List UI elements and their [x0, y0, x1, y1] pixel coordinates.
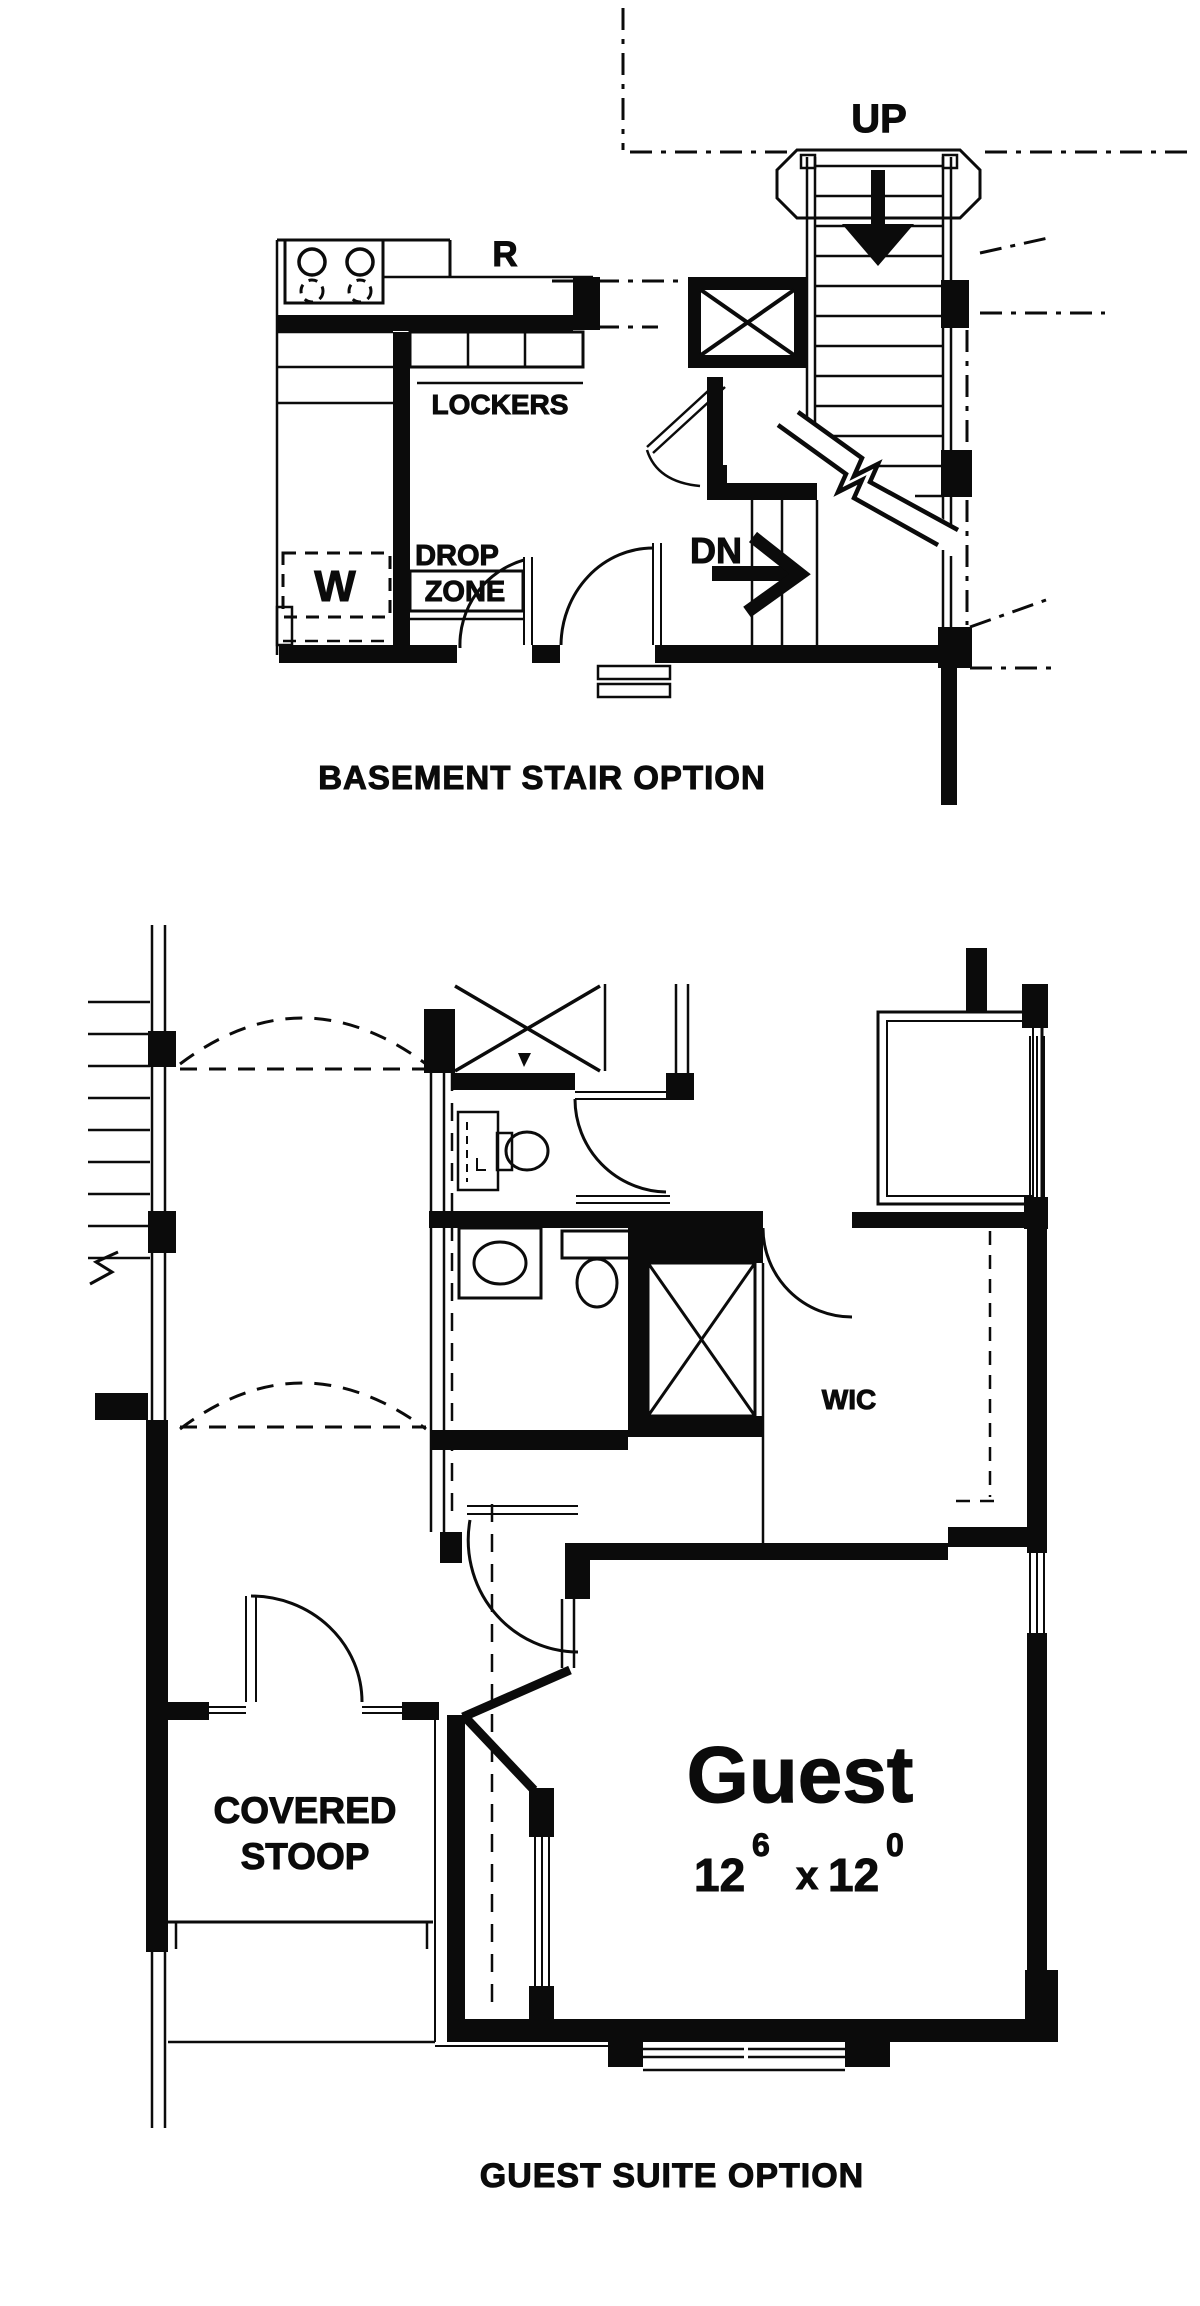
dim-width-ft: 12 [694, 1849, 745, 1901]
basement-stair-plan: UP R LOCKERS W DROP ZONE DN BASEMENT STA… [277, 8, 1190, 805]
coat-closet [424, 984, 688, 1073]
full-bath [459, 1228, 763, 1543]
dn-label: DN [690, 530, 742, 571]
range-label: R [492, 235, 517, 274]
guest-suite-plan: WIC Guest 12 6 x 12 0 COVERED STOOP GUES… [88, 925, 1058, 2195]
guest-room-label: Guest [687, 1730, 914, 1819]
floor-plan-drawing: UP R LOCKERS W DROP ZONE DN BASEMENT STA… [0, 0, 1200, 2306]
left-exterior-wall [95, 925, 176, 2128]
side-hatch-lines [88, 1002, 150, 1284]
wic-closet [763, 1228, 994, 1501]
box-window [878, 948, 1048, 1229]
guest-suite-caption: GUEST SUITE OPTION [480, 2157, 864, 2195]
washer-label: W [314, 562, 356, 611]
up-label: UP [851, 97, 907, 141]
drop-zone-label-line1: DROP [415, 540, 499, 572]
drop-zone-label-line2: ZONE [425, 576, 506, 608]
guest-entry [440, 1506, 1027, 1652]
covered-stoop-label-line1: COVERED [214, 1790, 397, 1831]
covered-stoop-label-line2: STOOP [241, 1836, 370, 1877]
guest-room-dimension: 12 6 x 12 0 [694, 1827, 904, 1901]
half-bath [458, 1092, 670, 1203]
guest-south-wall [435, 2019, 1025, 2070]
basement-stair-caption: BASEMENT STAIR OPTION [318, 759, 766, 796]
right-exterior-wall [1025, 1227, 1058, 2042]
dim-depth-in: 0 [886, 1827, 904, 1863]
dim-separator: x [796, 1854, 818, 1898]
walls [277, 277, 972, 805]
dim-depth-ft: 12 [828, 1849, 879, 1901]
overhead-arches [180, 1018, 426, 1429]
chase-box [688, 277, 807, 368]
dim-width-in: 6 [752, 1827, 770, 1863]
floor-plan-sheet: UP R LOCKERS W DROP ZONE DN BASEMENT STA… [0, 0, 1200, 2306]
lockers-label: LOCKERS [432, 389, 569, 420]
wic-label: WIC [822, 1384, 876, 1415]
